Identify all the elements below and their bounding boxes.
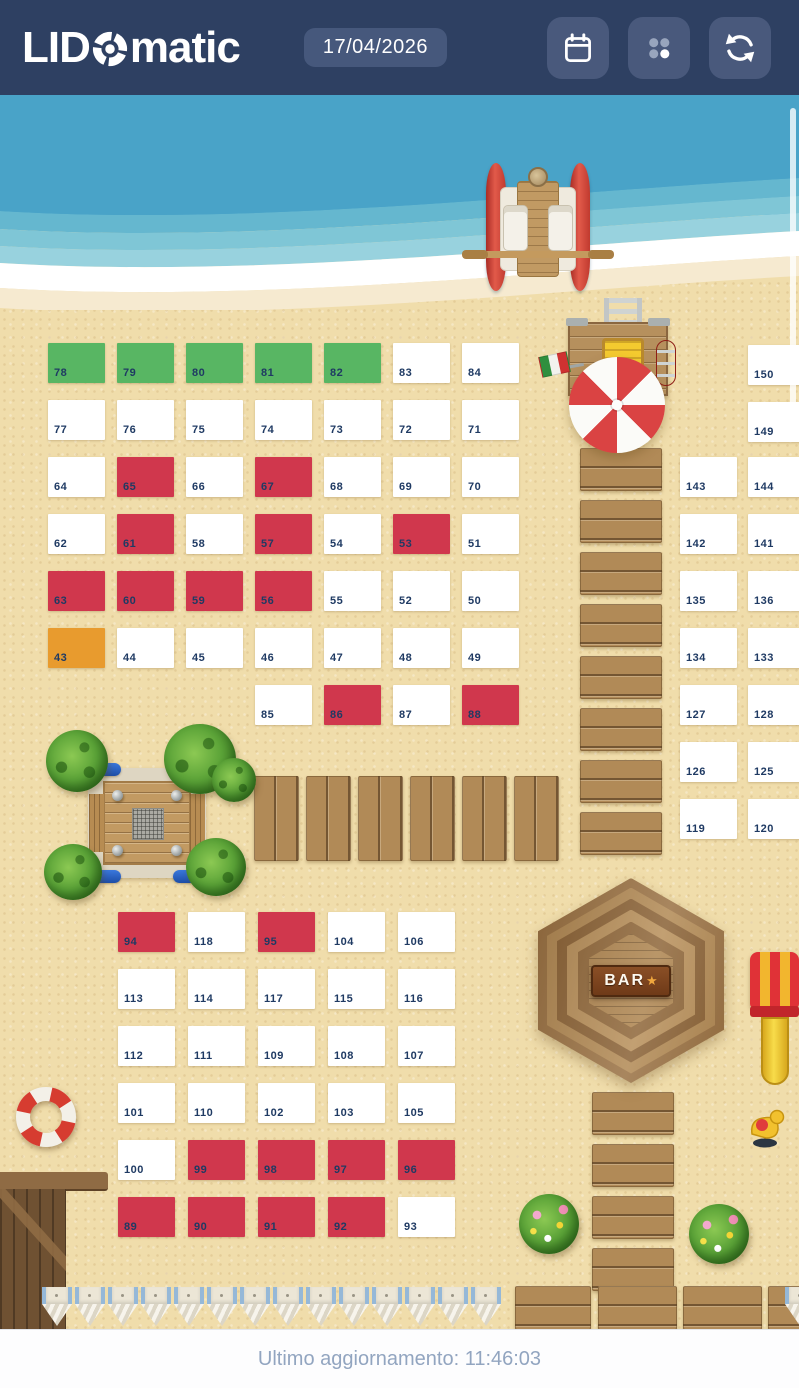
spot-number: 66 bbox=[186, 481, 205, 497]
spot-86[interactable]: 86 bbox=[324, 685, 381, 725]
spot-126[interactable]: 126 bbox=[680, 742, 737, 782]
spot-number: 116 bbox=[398, 993, 423, 1009]
dots-grid-icon bbox=[640, 29, 678, 67]
spot-63[interactable]: 63 bbox=[48, 571, 105, 611]
spot-number: 112 bbox=[118, 1050, 143, 1066]
rescue-buoy bbox=[656, 340, 676, 386]
bush bbox=[46, 730, 108, 792]
beach-fence-post bbox=[42, 1287, 72, 1329]
boardwalk-tile bbox=[580, 708, 662, 751]
spot-97[interactable]: 97 bbox=[328, 1140, 385, 1180]
spot-85[interactable]: 85 bbox=[255, 685, 312, 725]
calendar-icon bbox=[559, 29, 597, 67]
fence-chevron bbox=[207, 1304, 237, 1329]
spot-114[interactable]: 114 bbox=[188, 969, 245, 1009]
boardwalk-tile bbox=[592, 1092, 674, 1135]
spot-number: 119 bbox=[680, 823, 705, 839]
spot-number: 97 bbox=[328, 1164, 347, 1180]
spot-number: 62 bbox=[48, 538, 67, 554]
spot-95[interactable]: 95 bbox=[258, 912, 315, 952]
spot-93[interactable]: 93 bbox=[398, 1197, 455, 1237]
spot-number: 60 bbox=[117, 595, 136, 611]
spot-number: 83 bbox=[393, 367, 412, 383]
spot-117[interactable]: 117 bbox=[258, 969, 315, 1009]
fence-chevron bbox=[273, 1304, 303, 1329]
spot-96[interactable]: 96 bbox=[398, 1140, 455, 1180]
spot-number: 107 bbox=[398, 1050, 424, 1066]
spot-number: 128 bbox=[748, 709, 774, 725]
beach-fence-post bbox=[471, 1287, 501, 1329]
last-update-text: Ultimo aggiornamento: 11:46:03 bbox=[258, 1348, 541, 1371]
spot-64[interactable]: 64 bbox=[48, 457, 105, 497]
deck-bench-left bbox=[89, 794, 104, 852]
spot-number: 82 bbox=[324, 367, 343, 383]
spot-number: 126 bbox=[680, 766, 706, 782]
boardwalk-tile bbox=[580, 812, 662, 855]
spot-number: 96 bbox=[398, 1164, 417, 1180]
fence-cap bbox=[207, 1287, 237, 1304]
spot-number: 43 bbox=[48, 652, 67, 668]
spot-87[interactable]: 87 bbox=[393, 685, 450, 725]
spot-number: 92 bbox=[328, 1221, 347, 1237]
spot-73[interactable]: 73 bbox=[324, 400, 381, 440]
lifeguard-umbrella bbox=[569, 357, 665, 453]
cabin-diagonal-plank bbox=[0, 1189, 66, 1295]
spot-53[interactable]: 53 bbox=[393, 514, 450, 554]
fence-chevron bbox=[785, 1304, 799, 1329]
spot-141[interactable]: 141 bbox=[748, 514, 799, 554]
spot-number: 55 bbox=[324, 595, 343, 611]
spot-99[interactable]: 99 bbox=[188, 1140, 245, 1180]
spot-number: 46 bbox=[255, 652, 274, 668]
slide-front bbox=[750, 1006, 799, 1017]
spot-111[interactable]: 111 bbox=[188, 1026, 245, 1066]
boardwalk-tile bbox=[580, 656, 662, 699]
spot-number: 103 bbox=[328, 1107, 354, 1123]
spot-number: 114 bbox=[188, 993, 213, 1009]
spot-number: 104 bbox=[328, 936, 354, 952]
refresh-button[interactable] bbox=[709, 17, 771, 79]
spot-number: 68 bbox=[324, 481, 343, 497]
spot-60[interactable]: 60 bbox=[117, 571, 174, 611]
fence-cap bbox=[785, 1287, 799, 1304]
platform-bracket bbox=[566, 318, 588, 326]
beach-fence-post bbox=[240, 1287, 270, 1329]
fence-cap bbox=[438, 1287, 468, 1304]
spot-number: 79 bbox=[117, 367, 136, 383]
spot-number: 120 bbox=[748, 823, 774, 839]
boardwalk-tile bbox=[462, 776, 507, 861]
spot-number: 63 bbox=[48, 595, 67, 611]
spot-number: 98 bbox=[258, 1164, 277, 1180]
spot-number: 94 bbox=[118, 936, 137, 952]
fence-cap bbox=[141, 1287, 171, 1304]
spot-number: 69 bbox=[393, 481, 412, 497]
refresh-icon bbox=[721, 29, 759, 67]
beach-fence-post bbox=[75, 1287, 105, 1329]
header-buttons bbox=[547, 17, 771, 79]
spot-144[interactable]: 144 bbox=[748, 457, 799, 497]
fence-chevron bbox=[372, 1304, 402, 1329]
fence-chevron bbox=[405, 1304, 435, 1329]
fence-cap bbox=[273, 1287, 303, 1304]
boardwalk-tile bbox=[580, 604, 662, 647]
boardwalk-tile bbox=[592, 1144, 674, 1187]
spot-number: 73 bbox=[324, 424, 343, 440]
spot-number: 127 bbox=[680, 709, 706, 725]
spot-number: 102 bbox=[258, 1107, 284, 1123]
spot-number: 142 bbox=[680, 538, 706, 554]
fence-cap bbox=[75, 1287, 105, 1304]
spot-49[interactable]: 49 bbox=[462, 628, 519, 668]
fence-chevron bbox=[42, 1304, 72, 1329]
beach-fence-post bbox=[785, 1287, 799, 1329]
logo-text-lid: LID bbox=[22, 23, 90, 73]
boardwalk-tile bbox=[515, 1286, 591, 1330]
spot-113[interactable]: 113 bbox=[118, 969, 175, 1009]
logo-text-matic: matic bbox=[130, 23, 240, 73]
paddle bbox=[466, 251, 610, 258]
spot-100[interactable]: 100 bbox=[118, 1140, 175, 1180]
spot-number: 71 bbox=[462, 424, 481, 440]
deck-drain-grate bbox=[132, 808, 164, 840]
spot-135[interactable]: 135 bbox=[680, 571, 737, 611]
boardwalk-tile bbox=[683, 1286, 762, 1330]
spot-number: 76 bbox=[117, 424, 136, 440]
spot-143[interactable]: 143 bbox=[680, 457, 737, 497]
bar-kiosk: BAR★ bbox=[538, 878, 724, 1083]
fence-cap bbox=[471, 1287, 501, 1304]
bush bbox=[186, 838, 246, 896]
status-bar: Ultimo aggiornamento: 11:46:03 bbox=[0, 1329, 799, 1388]
spot-101[interactable]: 101 bbox=[118, 1083, 175, 1123]
spot-116[interactable]: 116 bbox=[398, 969, 455, 1009]
spot-90[interactable]: 90 bbox=[188, 1197, 245, 1237]
spot-number: 113 bbox=[118, 993, 143, 1009]
spot-65[interactable]: 65 bbox=[117, 457, 174, 497]
spot-112[interactable]: 112 bbox=[118, 1026, 175, 1066]
spot-43[interactable]: 43 bbox=[48, 628, 105, 668]
spot-77[interactable]: 77 bbox=[48, 400, 105, 440]
spot-107[interactable]: 107 bbox=[398, 1026, 455, 1066]
spot-number: 89 bbox=[118, 1221, 137, 1237]
spot-51[interactable]: 51 bbox=[462, 514, 519, 554]
spot-number: 80 bbox=[186, 367, 205, 383]
spot-number: 150 bbox=[748, 369, 774, 385]
spot-number: 144 bbox=[748, 481, 774, 497]
beach-fence-post bbox=[306, 1287, 336, 1329]
spot-74[interactable]: 74 bbox=[255, 400, 312, 440]
rope-coil-icon bbox=[528, 167, 548, 187]
sea-waves bbox=[0, 95, 799, 310]
catamaran-seat bbox=[503, 205, 528, 251]
spot-number: 64 bbox=[48, 481, 67, 497]
spot-128[interactable]: 128 bbox=[748, 685, 799, 725]
spot-79[interactable]: 79 bbox=[117, 343, 174, 383]
spot-number: 109 bbox=[258, 1050, 284, 1066]
fence-cap bbox=[108, 1287, 138, 1304]
spot-67[interactable]: 67 bbox=[255, 457, 312, 497]
spot-109[interactable]: 109 bbox=[258, 1026, 315, 1066]
spot-45[interactable]: 45 bbox=[186, 628, 243, 668]
flower-bush bbox=[689, 1204, 749, 1264]
spot-number: 133 bbox=[748, 652, 774, 668]
beach-fence-post bbox=[372, 1287, 402, 1329]
boardwalk-tile bbox=[580, 760, 662, 803]
spot-number: 115 bbox=[328, 993, 353, 1009]
spot-52[interactable]: 52 bbox=[393, 571, 450, 611]
spot-number: 88 bbox=[462, 709, 481, 725]
spot-number: 111 bbox=[188, 1050, 213, 1066]
spot-number: 86 bbox=[324, 709, 343, 725]
spot-71[interactable]: 71 bbox=[462, 400, 519, 440]
shower-head-icon bbox=[171, 845, 182, 856]
boardwalk-tile bbox=[580, 500, 662, 543]
spot-number: 49 bbox=[462, 652, 481, 668]
spot-number: 67 bbox=[255, 481, 274, 497]
spot-number: 143 bbox=[680, 481, 706, 497]
spot-91[interactable]: 91 bbox=[258, 1197, 315, 1237]
spot-92[interactable]: 92 bbox=[328, 1197, 385, 1237]
spot-number: 149 bbox=[748, 426, 774, 442]
spot-119[interactable]: 119 bbox=[680, 799, 737, 839]
spot-number: 77 bbox=[48, 424, 67, 440]
star-icon: ★ bbox=[646, 973, 658, 989]
spot-127[interactable]: 127 bbox=[680, 685, 737, 725]
spot-number: 81 bbox=[255, 367, 274, 383]
spot-61[interactable]: 61 bbox=[117, 514, 174, 554]
spot-number: 110 bbox=[188, 1107, 213, 1123]
spot-120[interactable]: 120 bbox=[748, 799, 799, 839]
spot-number: 58 bbox=[186, 538, 205, 554]
spot-number: 50 bbox=[462, 595, 481, 611]
spot-number: 135 bbox=[680, 595, 706, 611]
spot-number: 108 bbox=[328, 1050, 354, 1066]
spot-number: 52 bbox=[393, 595, 412, 611]
spot-58[interactable]: 58 bbox=[186, 514, 243, 554]
boardwalk-tile bbox=[254, 776, 299, 861]
fence-cap bbox=[174, 1287, 204, 1304]
fence-cap bbox=[306, 1287, 336, 1304]
spot-number: 136 bbox=[748, 595, 774, 611]
lifebuoy-ring bbox=[13, 1083, 79, 1153]
spot-number: 105 bbox=[398, 1107, 424, 1123]
spot-number: 45 bbox=[186, 652, 205, 668]
beach-fence-post bbox=[108, 1287, 138, 1329]
boardwalk-tile bbox=[410, 776, 455, 861]
spot-136[interactable]: 136 bbox=[748, 571, 799, 611]
spot-number: 141 bbox=[748, 538, 774, 554]
spot-103[interactable]: 103 bbox=[328, 1083, 385, 1123]
fence-chevron bbox=[339, 1304, 369, 1329]
spot-number: 78 bbox=[48, 367, 67, 383]
slide-chute bbox=[761, 1017, 789, 1085]
spot-134[interactable]: 134 bbox=[680, 628, 737, 668]
spot-number: 91 bbox=[258, 1221, 277, 1237]
spot-number: 87 bbox=[393, 709, 412, 725]
spot-81[interactable]: 81 bbox=[255, 343, 312, 383]
shower-head-icon bbox=[171, 790, 182, 801]
fence-chevron bbox=[306, 1304, 336, 1329]
spot-70[interactable]: 70 bbox=[462, 457, 519, 497]
spot-number: 74 bbox=[255, 424, 274, 440]
boardwalk-tile bbox=[592, 1196, 674, 1239]
spot-110[interactable]: 110 bbox=[188, 1083, 245, 1123]
spot-115[interactable]: 115 bbox=[328, 969, 385, 1009]
catamaran-boat bbox=[486, 163, 590, 293]
beach-fence-post bbox=[174, 1287, 204, 1329]
fence-chevron bbox=[240, 1304, 270, 1329]
beach-fence-post bbox=[141, 1287, 171, 1329]
shower-head-icon bbox=[112, 845, 123, 856]
spot-50[interactable]: 50 bbox=[462, 571, 519, 611]
spot-76[interactable]: 76 bbox=[117, 400, 174, 440]
spot-number: 106 bbox=[398, 936, 424, 952]
spot-125[interactable]: 125 bbox=[748, 742, 799, 782]
spot-72[interactable]: 72 bbox=[393, 400, 450, 440]
fence-chevron bbox=[471, 1304, 501, 1329]
fence-cap bbox=[372, 1287, 402, 1304]
spot-number: 75 bbox=[186, 424, 205, 440]
spot-102[interactable]: 102 bbox=[258, 1083, 315, 1123]
spot-82[interactable]: 82 bbox=[324, 343, 381, 383]
fence-chevron bbox=[174, 1304, 204, 1329]
scrollbar-thumb[interactable] bbox=[790, 108, 796, 438]
shower-head-icon bbox=[112, 790, 123, 801]
beach-fence-post bbox=[405, 1287, 435, 1329]
slide-canopy bbox=[750, 952, 799, 1008]
spot-75[interactable]: 75 bbox=[186, 400, 243, 440]
spot-105[interactable]: 105 bbox=[398, 1083, 455, 1123]
spot-number: 117 bbox=[258, 993, 283, 1009]
spot-54[interactable]: 54 bbox=[324, 514, 381, 554]
bush bbox=[44, 844, 102, 900]
boardwalk-tile bbox=[358, 776, 403, 861]
spot-142[interactable]: 142 bbox=[680, 514, 737, 554]
spot-84[interactable]: 84 bbox=[462, 343, 519, 383]
fence-cap bbox=[240, 1287, 270, 1304]
fence-chevron bbox=[141, 1304, 171, 1329]
spot-57[interactable]: 57 bbox=[255, 514, 312, 554]
spot-number: 134 bbox=[680, 652, 706, 668]
spot-number: 44 bbox=[117, 652, 136, 668]
italian-flag-icon bbox=[538, 351, 571, 378]
spot-number: 57 bbox=[255, 538, 274, 554]
spot-number: 100 bbox=[118, 1164, 144, 1180]
beach-fence-post bbox=[273, 1287, 303, 1329]
spot-number: 90 bbox=[188, 1221, 207, 1237]
spot-number: 59 bbox=[186, 595, 205, 611]
boardwalk-tile bbox=[598, 1286, 677, 1330]
spot-47[interactable]: 47 bbox=[324, 628, 381, 668]
spot-89[interactable]: 89 bbox=[118, 1197, 175, 1237]
spot-133[interactable]: 133 bbox=[748, 628, 799, 668]
rocking-horse-toy bbox=[742, 1102, 786, 1148]
spot-number: 54 bbox=[324, 538, 343, 554]
boardwalk-tile bbox=[514, 776, 559, 861]
spot-number: 85 bbox=[255, 709, 274, 725]
fence-cap bbox=[405, 1287, 435, 1304]
spot-number: 65 bbox=[117, 481, 136, 497]
bar-sign: BAR★ bbox=[591, 965, 671, 997]
lidomatic-app: LID matic 17/04/2026 bbox=[0, 0, 799, 1388]
spot-94[interactable]: 94 bbox=[118, 912, 175, 952]
spot-number: 53 bbox=[393, 538, 412, 554]
boardwalk-tile bbox=[580, 552, 662, 595]
boardwalk-tile bbox=[580, 448, 662, 491]
boardwalk-tile bbox=[592, 1248, 674, 1291]
date-display[interactable]: 17/04/2026 bbox=[304, 28, 447, 67]
fence-chevron bbox=[438, 1304, 468, 1329]
flower-bush bbox=[519, 1194, 579, 1254]
spot-56[interactable]: 56 bbox=[255, 571, 312, 611]
spot-number: 48 bbox=[393, 652, 412, 668]
spot-number: 72 bbox=[393, 424, 412, 440]
spot-98[interactable]: 98 bbox=[258, 1140, 315, 1180]
spot-69[interactable]: 69 bbox=[393, 457, 450, 497]
app-logo: LID matic bbox=[22, 23, 240, 73]
spot-78[interactable]: 78 bbox=[48, 343, 105, 383]
spot-118[interactable]: 118 bbox=[188, 912, 245, 952]
fence-chevron bbox=[108, 1304, 138, 1329]
spot-83[interactable]: 83 bbox=[393, 343, 450, 383]
fence-cap bbox=[42, 1287, 72, 1304]
spot-number: 118 bbox=[188, 936, 213, 952]
spot-104[interactable]: 104 bbox=[328, 912, 385, 952]
boardwalk-tile bbox=[306, 776, 351, 861]
spot-number: 51 bbox=[462, 538, 481, 554]
spot-80[interactable]: 80 bbox=[186, 343, 243, 383]
spot-59[interactable]: 59 bbox=[186, 571, 243, 611]
platform-bracket bbox=[648, 318, 670, 326]
bar-sign-label: BAR bbox=[604, 972, 645, 990]
fence-chevron bbox=[75, 1304, 105, 1329]
spot-number: 61 bbox=[117, 538, 136, 554]
spot-number: 125 bbox=[748, 766, 774, 782]
spot-number: 70 bbox=[462, 481, 481, 497]
spot-number: 93 bbox=[398, 1221, 417, 1237]
spot-number: 47 bbox=[324, 652, 343, 668]
beach-fence-post bbox=[339, 1287, 369, 1329]
spot-55[interactable]: 55 bbox=[324, 571, 381, 611]
top-bar: LID matic 17/04/2026 bbox=[0, 0, 799, 95]
spot-number: 56 bbox=[255, 595, 274, 611]
target-o-icon bbox=[91, 30, 129, 68]
spot-number: 101 bbox=[118, 1107, 144, 1123]
spot-number: 95 bbox=[258, 936, 277, 952]
spot-number: 99 bbox=[188, 1164, 207, 1180]
spot-88[interactable]: 88 bbox=[462, 685, 519, 725]
beach-fence-post bbox=[207, 1287, 237, 1329]
spot-62[interactable]: 62 bbox=[48, 514, 105, 554]
fence-cap bbox=[339, 1287, 369, 1304]
spot-66[interactable]: 66 bbox=[186, 457, 243, 497]
grid-menu-button[interactable] bbox=[628, 17, 690, 79]
bush bbox=[212, 758, 256, 802]
spot-48[interactable]: 48 bbox=[393, 628, 450, 668]
calendar-button[interactable] bbox=[547, 17, 609, 79]
spot-44[interactable]: 44 bbox=[117, 628, 174, 668]
spot-108[interactable]: 108 bbox=[328, 1026, 385, 1066]
catamaran-seat bbox=[548, 205, 573, 251]
spot-106[interactable]: 106 bbox=[398, 912, 455, 952]
spot-number: 84 bbox=[462, 367, 481, 383]
spot-46[interactable]: 46 bbox=[255, 628, 312, 668]
beach-fence-post bbox=[438, 1287, 468, 1329]
spot-68[interactable]: 68 bbox=[324, 457, 381, 497]
